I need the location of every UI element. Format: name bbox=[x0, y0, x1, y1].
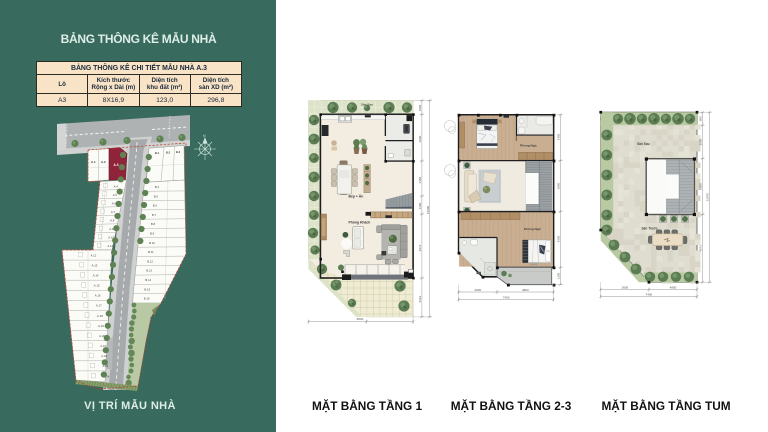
svg-text:4973: 4973 bbox=[418, 244, 422, 251]
svg-text:B.1: B.1 bbox=[155, 151, 160, 155]
svg-text:Phòng Ngủ: Phòng Ngủ bbox=[524, 227, 541, 231]
svg-text:A.12: A.12 bbox=[91, 253, 97, 257]
svg-text:B.16: B.16 bbox=[144, 297, 150, 301]
svg-text:4200: 4200 bbox=[557, 235, 561, 242]
svg-text:A.3: A.3 bbox=[114, 163, 119, 167]
svg-text:A.17: A.17 bbox=[96, 304, 102, 308]
svg-text:4973: 4973 bbox=[699, 245, 703, 252]
svg-text:A.14: A.14 bbox=[93, 274, 99, 278]
svg-text:16900: 16900 bbox=[426, 205, 430, 214]
svg-text:A.13: A.13 bbox=[92, 263, 98, 267]
svg-text:3450: 3450 bbox=[557, 133, 561, 140]
svg-text:A.9: A.9 bbox=[109, 227, 114, 231]
svg-text:B.14: B.14 bbox=[145, 278, 151, 282]
svg-text:3850: 3850 bbox=[557, 182, 561, 189]
svg-text:2350: 2350 bbox=[699, 183, 703, 190]
svg-text:B.3: B.3 bbox=[176, 150, 181, 154]
svg-text:A.7: A.7 bbox=[111, 210, 116, 214]
svg-text:2600: 2600 bbox=[621, 285, 628, 289]
svg-text:5223: 5223 bbox=[418, 295, 422, 302]
svg-text:A.18: A.18 bbox=[97, 314, 103, 318]
svg-text:A.11: A.11 bbox=[107, 244, 113, 248]
svg-text:B.5: B.5 bbox=[154, 194, 159, 198]
svg-text:Bếp + Ăn: Bếp + Ăn bbox=[349, 193, 364, 198]
svg-text:B.15: B.15 bbox=[144, 287, 150, 291]
svg-text:2350: 2350 bbox=[418, 176, 422, 183]
svg-text:A.19: A.19 bbox=[98, 324, 104, 328]
svg-text:B.11: B.11 bbox=[148, 250, 154, 254]
svg-text:1200: 1200 bbox=[418, 202, 422, 209]
svg-text:B.13: B.13 bbox=[146, 269, 152, 273]
svg-text:Phòng Ngủ: Phòng Ngủ bbox=[520, 144, 537, 148]
svg-text:Sân Sau: Sân Sau bbox=[637, 142, 650, 146]
svg-text:B.4: B.4 bbox=[155, 185, 160, 189]
svg-text:4800: 4800 bbox=[670, 285, 677, 289]
svg-text:B.2: B.2 bbox=[166, 151, 171, 155]
svg-text:A.4: A.4 bbox=[114, 184, 119, 188]
svg-text:B.12: B.12 bbox=[147, 259, 153, 263]
svg-text:8000: 8000 bbox=[357, 317, 364, 321]
svg-text:B.6: B.6 bbox=[153, 204, 158, 208]
svg-text:A.8: A.8 bbox=[110, 219, 115, 223]
svg-text:1300: 1300 bbox=[557, 272, 561, 279]
svg-text:1500: 1500 bbox=[418, 104, 422, 111]
svg-text:B.10: B.10 bbox=[149, 241, 155, 245]
svg-text:13075: 13075 bbox=[706, 193, 710, 202]
svg-text:N: N bbox=[203, 134, 206, 138]
svg-text:A.22: A.22 bbox=[101, 354, 107, 358]
svg-text:A.16: A.16 bbox=[95, 294, 101, 298]
svg-text:Phòng Khách: Phòng Khách bbox=[349, 221, 371, 225]
svg-text:7400: 7400 bbox=[503, 295, 510, 299]
svg-text:A.5: A.5 bbox=[113, 193, 118, 197]
svg-text:Sân Trước: Sân Trước bbox=[642, 227, 658, 231]
svg-text:Sân Sau: Sân Sau bbox=[361, 103, 373, 107]
svg-text:900: 900 bbox=[699, 116, 703, 121]
svg-text:A.2: A.2 bbox=[101, 160, 106, 164]
svg-text:A.15: A.15 bbox=[94, 284, 100, 288]
svg-text:B.8: B.8 bbox=[151, 222, 156, 226]
svg-text:A.1: A.1 bbox=[91, 160, 96, 164]
svg-text:3000: 3000 bbox=[418, 135, 422, 142]
svg-text:4800: 4800 bbox=[522, 288, 529, 292]
svg-text:2600: 2600 bbox=[699, 138, 703, 145]
svg-text:2600: 2600 bbox=[474, 288, 481, 292]
svg-text:B.7: B.7 bbox=[152, 213, 157, 217]
svg-text:7400: 7400 bbox=[646, 292, 653, 296]
svg-text:B.9: B.9 bbox=[150, 232, 155, 236]
